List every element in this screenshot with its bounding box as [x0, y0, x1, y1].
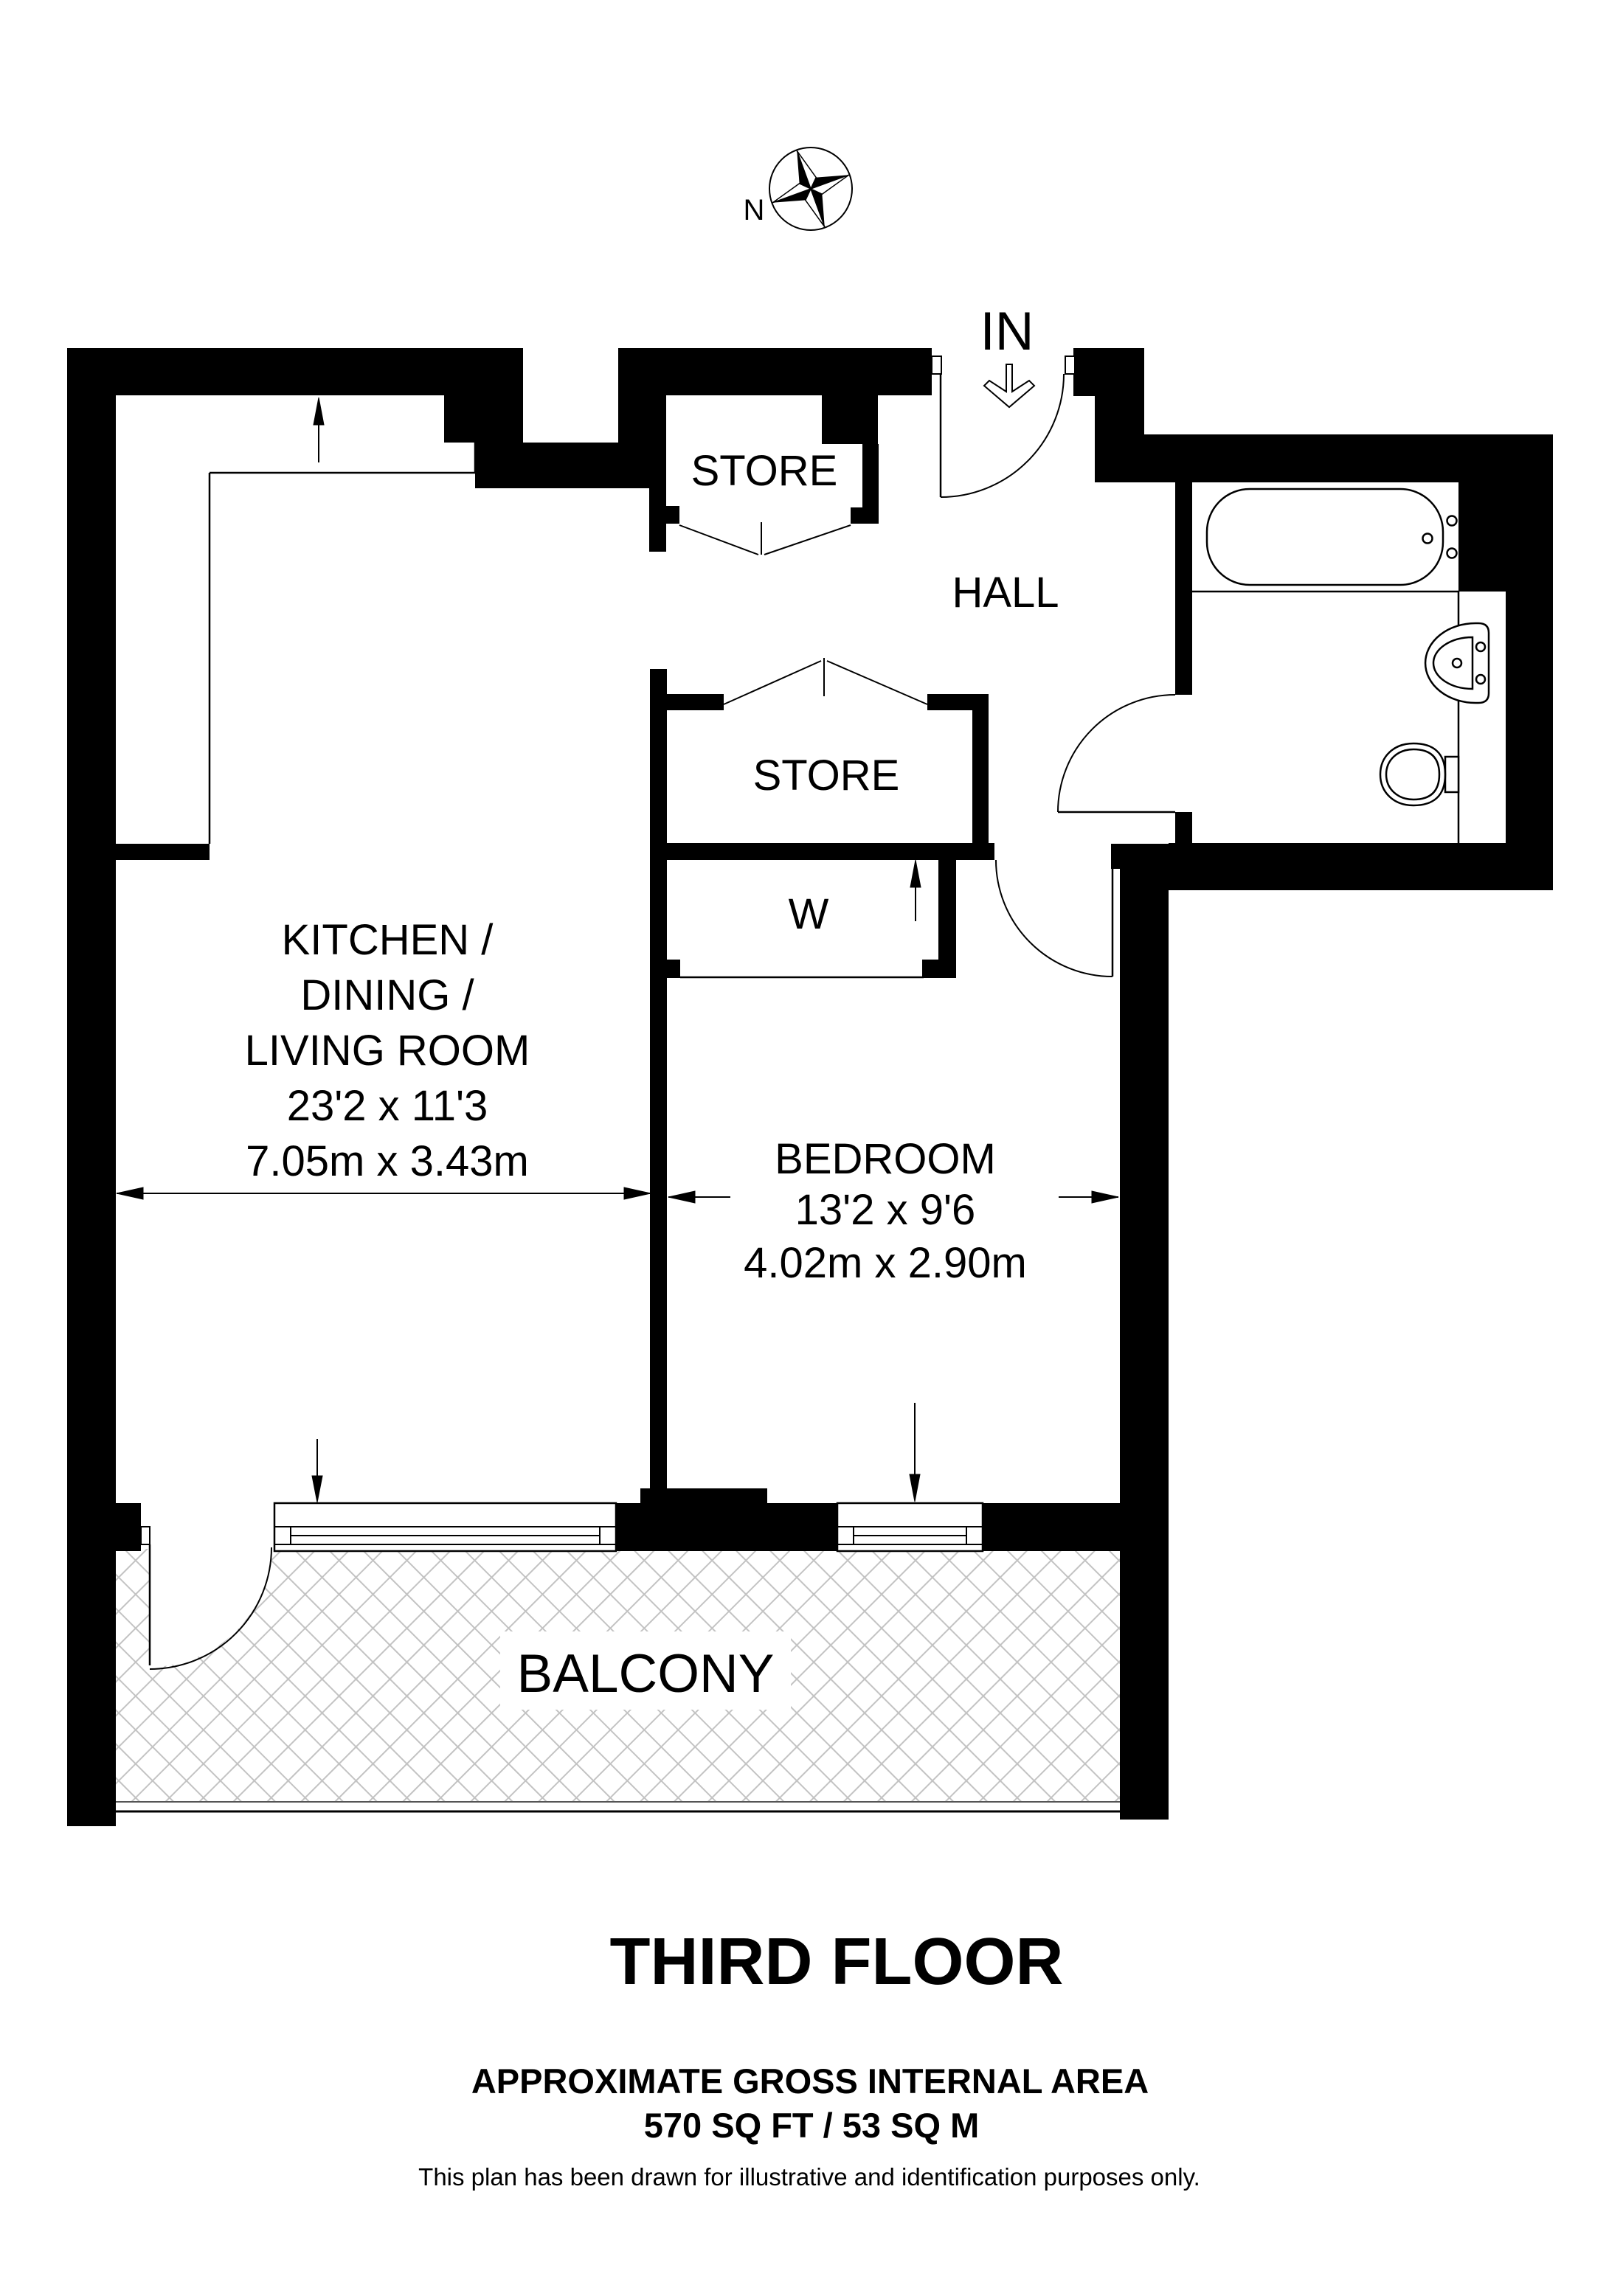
svg-text:IN: IN	[980, 302, 1034, 361]
svg-text:23'2 x 11'3: 23'2 x 11'3	[287, 1082, 488, 1130]
svg-text:13'2 x 9'6: 13'2 x 9'6	[795, 1186, 976, 1234]
svg-text:LIVING ROOM: LIVING ROOM	[245, 1027, 530, 1075]
svg-text:4.02m x 2.90m: 4.02m x 2.90m	[744, 1239, 1027, 1287]
svg-text:N: N	[744, 194, 765, 226]
svg-text:STORE: STORE	[691, 447, 838, 495]
svg-text:KITCHEN /: KITCHEN /	[282, 916, 494, 964]
svg-text:BEDROOM: BEDROOM	[775, 1135, 996, 1183]
svg-text:7.05m x 3.43m: 7.05m x 3.43m	[246, 1137, 529, 1185]
svg-text:STORE: STORE	[753, 752, 900, 800]
svg-text:THIRD FLOOR: THIRD FLOOR	[610, 1925, 1064, 1999]
svg-text:BALCONY: BALCONY	[517, 1644, 775, 1704]
svg-text:HALL: HALL	[952, 569, 1059, 617]
svg-text:W: W	[789, 890, 829, 938]
svg-text:APPROXIMATE GROSS INTERNAL ARE: APPROXIMATE GROSS INTERNAL AREA	[471, 2061, 1149, 2101]
svg-text:This plan has been drawn for i: This plan has been drawn for illustrativ…	[418, 2163, 1200, 2191]
svg-text:570 SQ FT / 53 SQ M: 570 SQ FT / 53 SQ M	[644, 2106, 980, 2145]
svg-text:DINING /: DINING /	[300, 971, 474, 1019]
